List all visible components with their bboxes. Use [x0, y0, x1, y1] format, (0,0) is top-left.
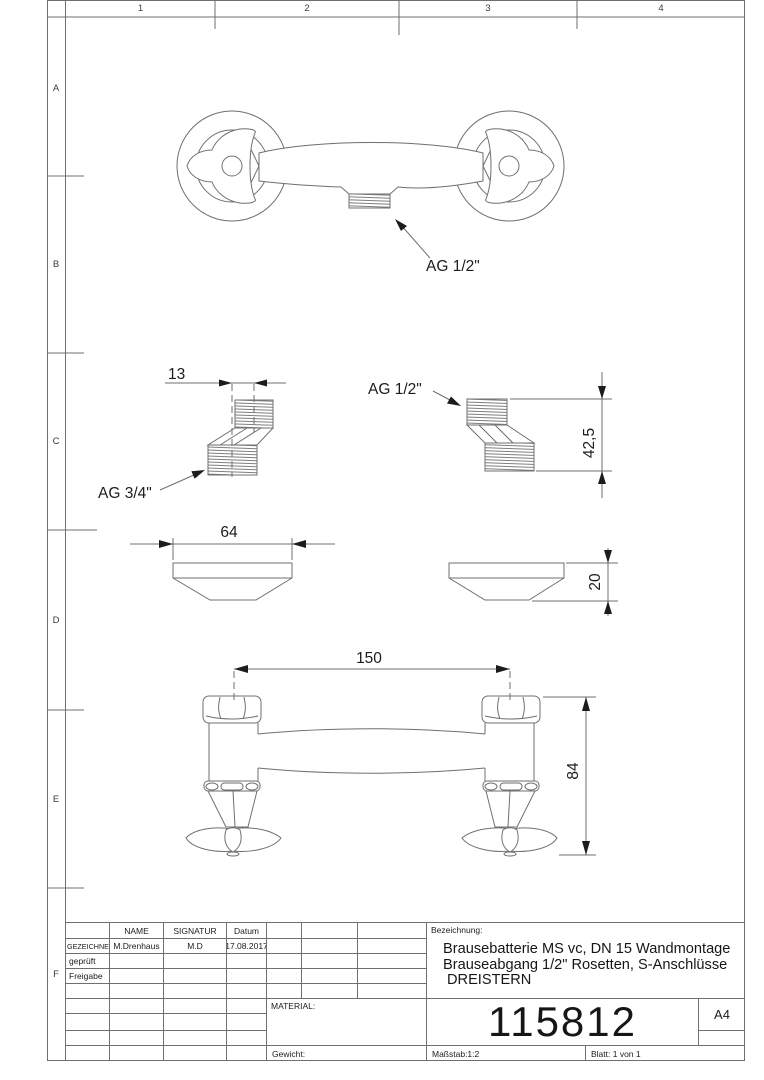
label-thread-large: AG 3/4" — [98, 485, 152, 502]
handle-hub-right — [499, 156, 519, 176]
blatt-cell: Blatt: 1 von 1 — [585, 1045, 745, 1061]
dim-s-offset: 13 — [168, 366, 185, 383]
bezeichnung-line-2: Brauseabgang 1/2" Rosetten, S-Anschlüsse — [443, 958, 745, 974]
handle-stem-right — [486, 791, 535, 827]
col-header-datum: Datum — [226, 922, 266, 938]
technical-drawing: AG 1/2" 13 AG 3/4" — [0, 0, 764, 1080]
massstab-cell: Maßstab:1:2 — [426, 1045, 585, 1061]
thread-upper — [467, 399, 507, 425]
bezeichnung-line-1: Brausebatterie MS vc, DN 15 Wandmontage — [443, 942, 745, 958]
grid-col-1: 1 — [66, 0, 215, 17]
part-number: 115812 — [426, 998, 698, 1045]
material-cell: MATERIAL: — [266, 998, 426, 1045]
gewicht-cell: Gewicht: — [266, 1045, 426, 1061]
body-top-edge — [258, 729, 485, 734]
row-label-gezeichnet: GEZEICHNET — [65, 938, 109, 953]
label-outlet-thread: AG 1/2" — [426, 258, 480, 275]
grid-row-b: B — [47, 176, 65, 353]
grid-row-e: E — [47, 710, 65, 888]
row-label-geprueft: geprüft — [65, 953, 109, 968]
grid-col-4: 4 — [577, 0, 745, 17]
material-label: MATERIAL: — [271, 1001, 426, 1011]
label-thread-small: AG 1/2" — [368, 381, 422, 398]
thread-upper — [235, 400, 273, 428]
bezeichnung-label: Bezeichnung: — [431, 925, 745, 935]
leader-arrowhead — [447, 397, 461, 407]
dim-s-height: 42,5 — [581, 428, 598, 458]
grid-row-c: C — [47, 353, 65, 530]
col-header-signatur: SIGNATUR — [163, 922, 226, 938]
leader-arrowhead — [191, 470, 205, 479]
dim-center-distance: 150 — [356, 650, 382, 667]
title-block: NAME SIGNATUR Datum GEZEICHNET M.Drenhau… — [65, 922, 745, 1061]
bezeichnung-line-3: DREISTERN — [443, 973, 745, 989]
col-header-name: NAME — [109, 922, 163, 938]
grid-row-d: D — [47, 530, 65, 710]
top-view — [186, 665, 596, 856]
bezeichnung-cell: Bezeichnung: Brausebatterie MS vc, DN 15… — [426, 922, 745, 998]
grid-col-3: 3 — [399, 0, 577, 17]
gezeichnet-signatur: M.D — [163, 938, 226, 953]
s-body — [208, 428, 273, 445]
handle-hub-left — [222, 156, 242, 176]
gezeichnet-name: M.Drenhaus — [109, 938, 163, 953]
paper-size: A4 — [698, 998, 745, 1030]
front-view — [177, 111, 564, 258]
dim-rosette-width: 64 — [220, 524, 238, 541]
s-body — [467, 425, 534, 443]
dim-overall-height: 84 — [565, 762, 582, 780]
handle-star-right — [486, 129, 554, 204]
s-connection-left-view — [160, 380, 286, 491]
thread-lower — [485, 443, 534, 471]
drawing-sheet: AG 1/2" 13 AG 3/4" — [0, 0, 764, 1080]
row-label-freigabe: Freigabe — [65, 968, 109, 983]
grid-row-f: F — [47, 888, 65, 1061]
grid-row-a: A — [47, 0, 65, 176]
body-bottom-edge — [258, 768, 485, 773]
handle-stem-left — [208, 791, 257, 827]
dim-rosette-height: 20 — [587, 573, 604, 591]
mixer-body — [259, 143, 483, 195]
gezeichnet-datum: 17.08.2017 — [226, 938, 266, 953]
outlet-thread — [349, 194, 390, 208]
handle-star-left — [187, 129, 255, 204]
thread-lower — [208, 445, 257, 475]
grid-col-2: 2 — [215, 0, 399, 17]
rosette-left-view — [130, 538, 335, 600]
